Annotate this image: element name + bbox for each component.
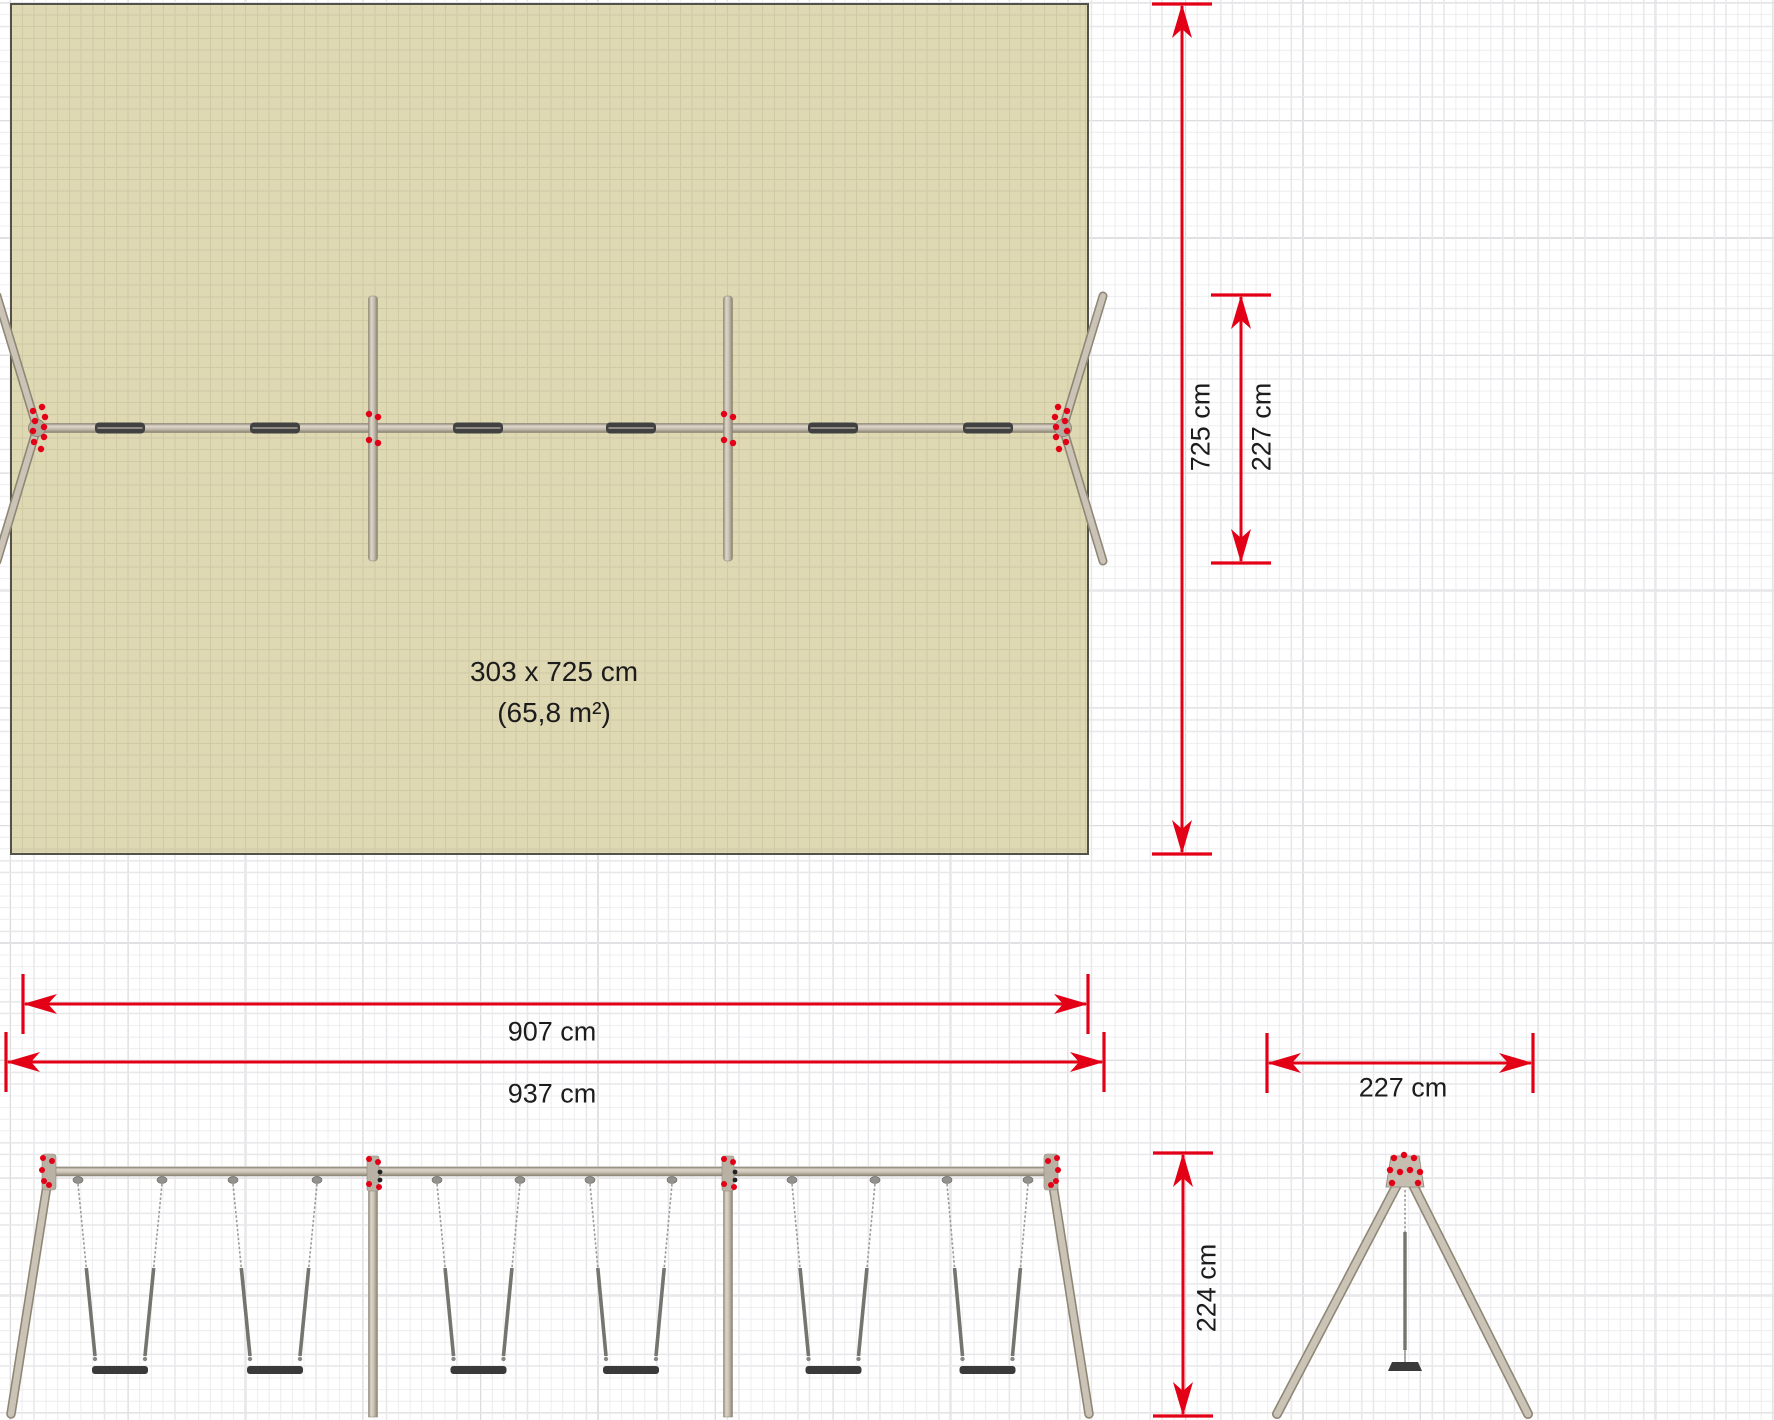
dim-label-227cm-side: 227 cm <box>1359 1075 1448 1102</box>
dim-label-227cm-plan: 227 cm <box>1249 383 1276 472</box>
dim-label-937cm: 937 cm <box>508 1081 597 1108</box>
technical-drawing-canvas: 303 x 725 cm (65,8 m²) 725 cm 227 cm 907… <box>0 0 1774 1420</box>
dim-label-725cm: 725 cm <box>1188 383 1215 472</box>
dim-label-907cm: 907 cm <box>508 1019 597 1046</box>
side-elevation-swing <box>1277 1152 1528 1414</box>
front-elevation-swing <box>11 1154 1089 1417</box>
plan-area-sqm-label: (65,8 m²) <box>497 699 611 727</box>
drawing-layer <box>0 0 1774 1420</box>
dim-label-224cm: 224 cm <box>1194 1244 1221 1333</box>
plan-view-swing <box>0 296 1103 561</box>
plan-area-size-label: 303 x 725 cm <box>470 658 638 686</box>
